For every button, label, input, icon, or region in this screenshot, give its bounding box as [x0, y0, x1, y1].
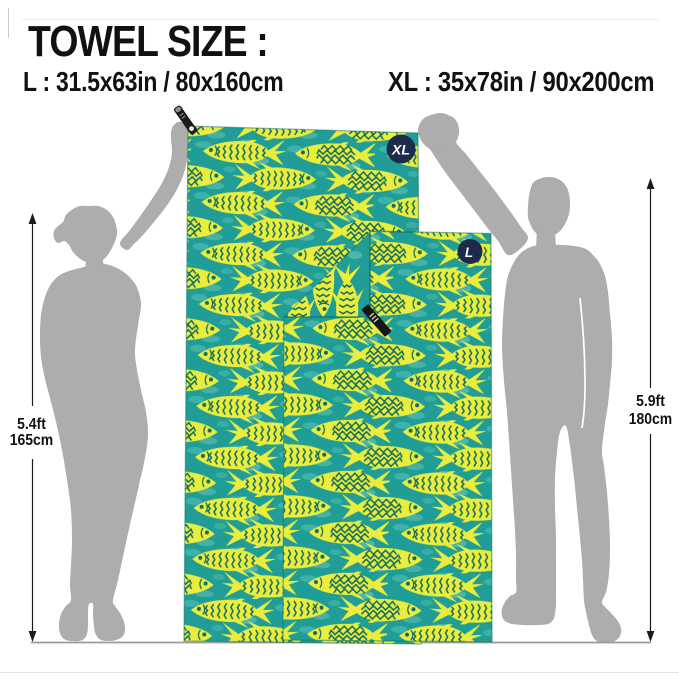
svg-text:L: L: [465, 245, 473, 260]
svg-text:XL: XL: [391, 142, 410, 158]
